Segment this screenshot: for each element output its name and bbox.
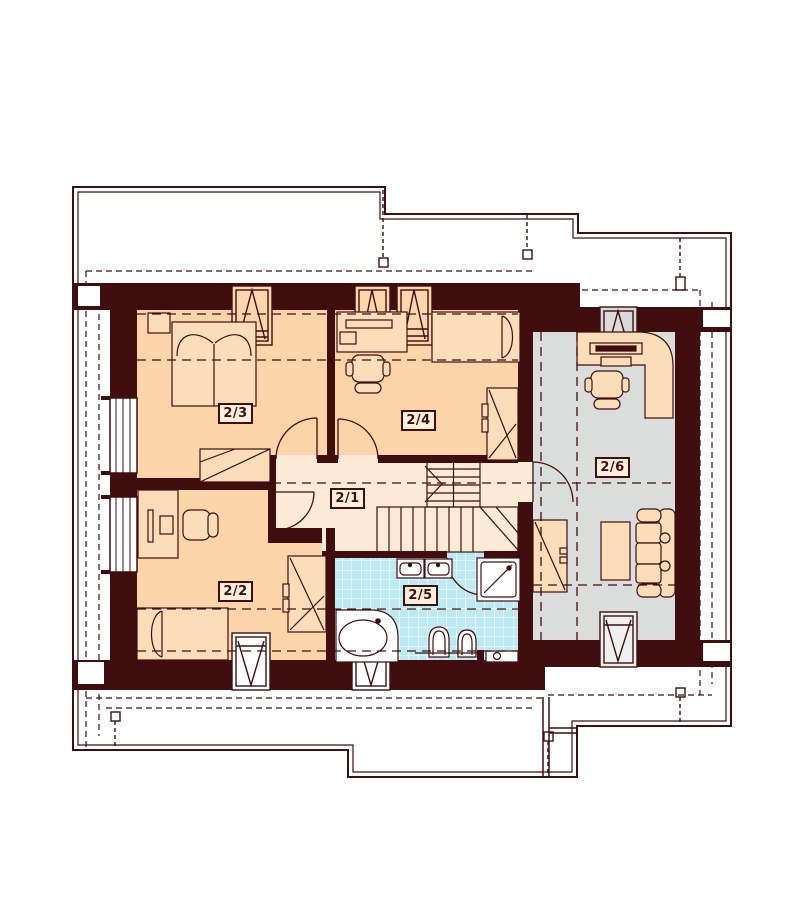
- single-bed-2-2: [137, 608, 228, 660]
- room-label-2-3: 2/3: [218, 403, 253, 424]
- desk-2-2: [138, 490, 178, 558]
- office-chair-2-2: [183, 510, 218, 540]
- sofa: [636, 509, 675, 597]
- coffee-table: [601, 522, 630, 580]
- desk-2-4: [337, 312, 407, 352]
- single-bed-2-4: [432, 312, 520, 362]
- room-label-2-2: 2/2: [218, 581, 253, 602]
- sink-1: [397, 559, 424, 578]
- nightstand: [148, 313, 170, 333]
- floor-plan-drawing: [0, 0, 800, 900]
- double-bed: [172, 322, 256, 406]
- window-2-3-west: [101, 396, 137, 475]
- wardrobe-2-2: [283, 556, 326, 632]
- wardrobe-2-6: [533, 520, 567, 592]
- room-label-2-1: 2/1: [330, 488, 365, 509]
- floor-hall-door-gap: [518, 462, 533, 502]
- wardrobe-2-3: [200, 449, 270, 482]
- roof-window-2-6-south: [600, 612, 637, 667]
- window-2-2-west: [101, 495, 137, 574]
- wardrobe-2-4: [482, 388, 518, 460]
- room-label-2-6: 2/6: [595, 457, 630, 478]
- washer-box: [486, 651, 518, 662]
- roof-window-2-2-south: [232, 633, 270, 690]
- shower: [477, 558, 520, 601]
- sink-2: [425, 559, 452, 578]
- room-label-2-5: 2/5: [403, 585, 438, 606]
- floor-plan-page: 2/1 2/2 2/3 2/4 2/5 2/6: [0, 0, 800, 900]
- bathtub: [336, 610, 398, 662]
- room-label-2-4: 2/4: [401, 410, 436, 431]
